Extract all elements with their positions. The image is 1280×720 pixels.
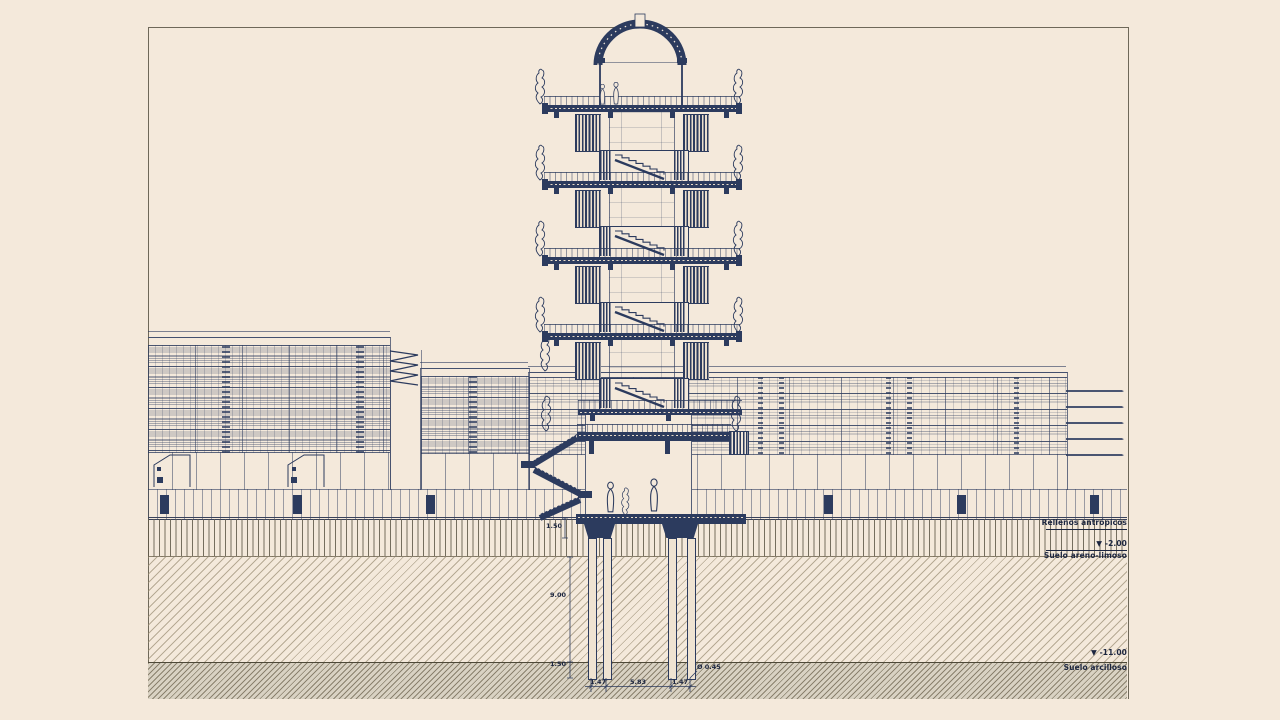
louvre-panel — [575, 266, 601, 304]
floor-slab — [544, 181, 740, 188]
slab-downstand — [724, 112, 729, 118]
slab-joint-dashes — [546, 108, 738, 110]
person-figure — [611, 82, 621, 105]
right-building-core-strip — [779, 377, 784, 455]
colonnade-door-mark — [426, 495, 435, 514]
colonnade-door-mark — [824, 495, 833, 514]
left-building-core-strip — [222, 346, 230, 454]
dim-pile-spacing-left: 1.47 — [586, 679, 610, 686]
dim-pile-spacing-mid: 5.83 — [626, 679, 650, 686]
cantilever-slab — [1066, 406, 1124, 408]
louvre-panel — [683, 190, 709, 228]
louvre-panel — [683, 342, 709, 380]
person-figure — [604, 481, 617, 514]
louvre-panel — [575, 114, 601, 152]
dimension-lines — [545, 510, 720, 695]
cantilever-slab — [1066, 438, 1124, 440]
slab-joint-dashes — [546, 336, 738, 338]
mid-building-elevation — [420, 368, 530, 490]
louvre-panel — [683, 114, 709, 152]
tree-figure — [730, 143, 744, 181]
tree-figure — [537, 334, 551, 372]
colonnade-door-mark — [1090, 495, 1099, 514]
tree-figure — [730, 295, 744, 333]
tree-figure — [532, 67, 546, 105]
right-building-core-strip — [1014, 377, 1019, 455]
slab-downstand — [724, 340, 729, 346]
colonnade-door-mark — [160, 495, 169, 514]
colonnade-door-mark — [957, 495, 966, 514]
left-building-elevation — [148, 337, 391, 490]
person-figure — [598, 84, 607, 105]
dim-cap-depth: 1.50 — [532, 523, 562, 530]
external-zigzag-stair — [518, 430, 612, 522]
mid-building-core-strip — [469, 376, 477, 454]
slab-downstand — [670, 188, 675, 194]
floor-slab — [544, 333, 740, 340]
tower-floor-module — [538, 333, 750, 409]
cantilever-slab — [1066, 454, 1124, 456]
label-level-minus-11: ▼ -11.00 — [997, 649, 1127, 657]
slab-downstand — [608, 340, 613, 346]
tree-figure — [728, 394, 742, 432]
louvre-panel — [575, 190, 601, 228]
right-building-core-strip — [758, 377, 763, 455]
terrace-rail-line — [600, 62, 684, 63]
louvre-panel — [575, 342, 601, 380]
cantilever-slab — [1066, 422, 1124, 424]
label-clay-soil: Suelo arcilloso — [997, 664, 1127, 672]
left-building-core-strip — [356, 346, 364, 454]
label-anthropic-fill: Rellenos antrópicos — [997, 519, 1127, 527]
slab-joint-dashes — [546, 260, 738, 262]
architectural-section-drawing: Rellenos antrópicos ▼ -2.00 Suelo areno-… — [0, 0, 1280, 720]
label-underline — [1046, 529, 1127, 530]
slab-downstand — [554, 112, 559, 118]
mid-building-ground-floor — [421, 453, 529, 490]
left-building-floor-grid — [148, 345, 390, 453]
dim-pile-diameter: Ø 0.45 — [697, 664, 721, 671]
dim-pile-length: 9.00 — [536, 592, 566, 599]
entrance-canopy — [152, 451, 192, 489]
tower-floor-module — [538, 181, 750, 257]
tree-figure — [538, 394, 552, 432]
louvre-panel — [683, 266, 709, 304]
slab-downstand — [670, 112, 675, 118]
slab-downstand — [608, 188, 613, 194]
slab-downstand — [554, 264, 559, 270]
dim-clay-embedment: 1.50 — [536, 661, 566, 668]
person-figure — [647, 477, 661, 514]
floor-slab-narrow — [578, 409, 742, 415]
tower-floor-module — [538, 105, 750, 181]
tree-figure — [730, 219, 744, 257]
slab-downstand — [670, 340, 675, 346]
slab-joint-dashes — [580, 412, 740, 414]
right-building-core-strip — [907, 377, 912, 455]
walkway-support — [665, 441, 670, 454]
walkway-end-block — [729, 431, 749, 455]
label-sandy-silt-soil: Suelo areno-limoso — [997, 552, 1127, 560]
tree-figure — [532, 295, 546, 333]
tree-figure — [532, 219, 546, 257]
floor-slab — [544, 257, 740, 264]
sawtooth-joint — [386, 349, 422, 389]
tower-floor-module — [538, 257, 750, 333]
slab-downstand — [670, 264, 675, 270]
label-level-minus-2: ▼ -2.00 — [997, 540, 1127, 548]
slab-joint-dashes — [546, 184, 738, 186]
slab-downstand — [724, 188, 729, 194]
slab-downstand — [554, 340, 559, 346]
dim-pile-spacing-right: 1.47 — [668, 679, 692, 686]
slab-downstand — [608, 112, 613, 118]
arch-roof — [590, 12, 690, 66]
floor-slab — [544, 105, 740, 112]
colonnade-door-mark — [293, 495, 302, 514]
slab-downstand — [666, 415, 671, 421]
slab-downstand — [608, 264, 613, 270]
slab-downstand — [724, 264, 729, 270]
cantilever-slab — [1066, 390, 1124, 392]
tree-figure — [730, 67, 744, 105]
shrub-figure — [619, 486, 630, 516]
tree-figure — [532, 143, 546, 181]
entrance-canopy — [286, 451, 326, 489]
slab-downstand — [590, 415, 595, 421]
slab-downstand — [554, 188, 559, 194]
right-building-core-strip — [886, 377, 891, 455]
